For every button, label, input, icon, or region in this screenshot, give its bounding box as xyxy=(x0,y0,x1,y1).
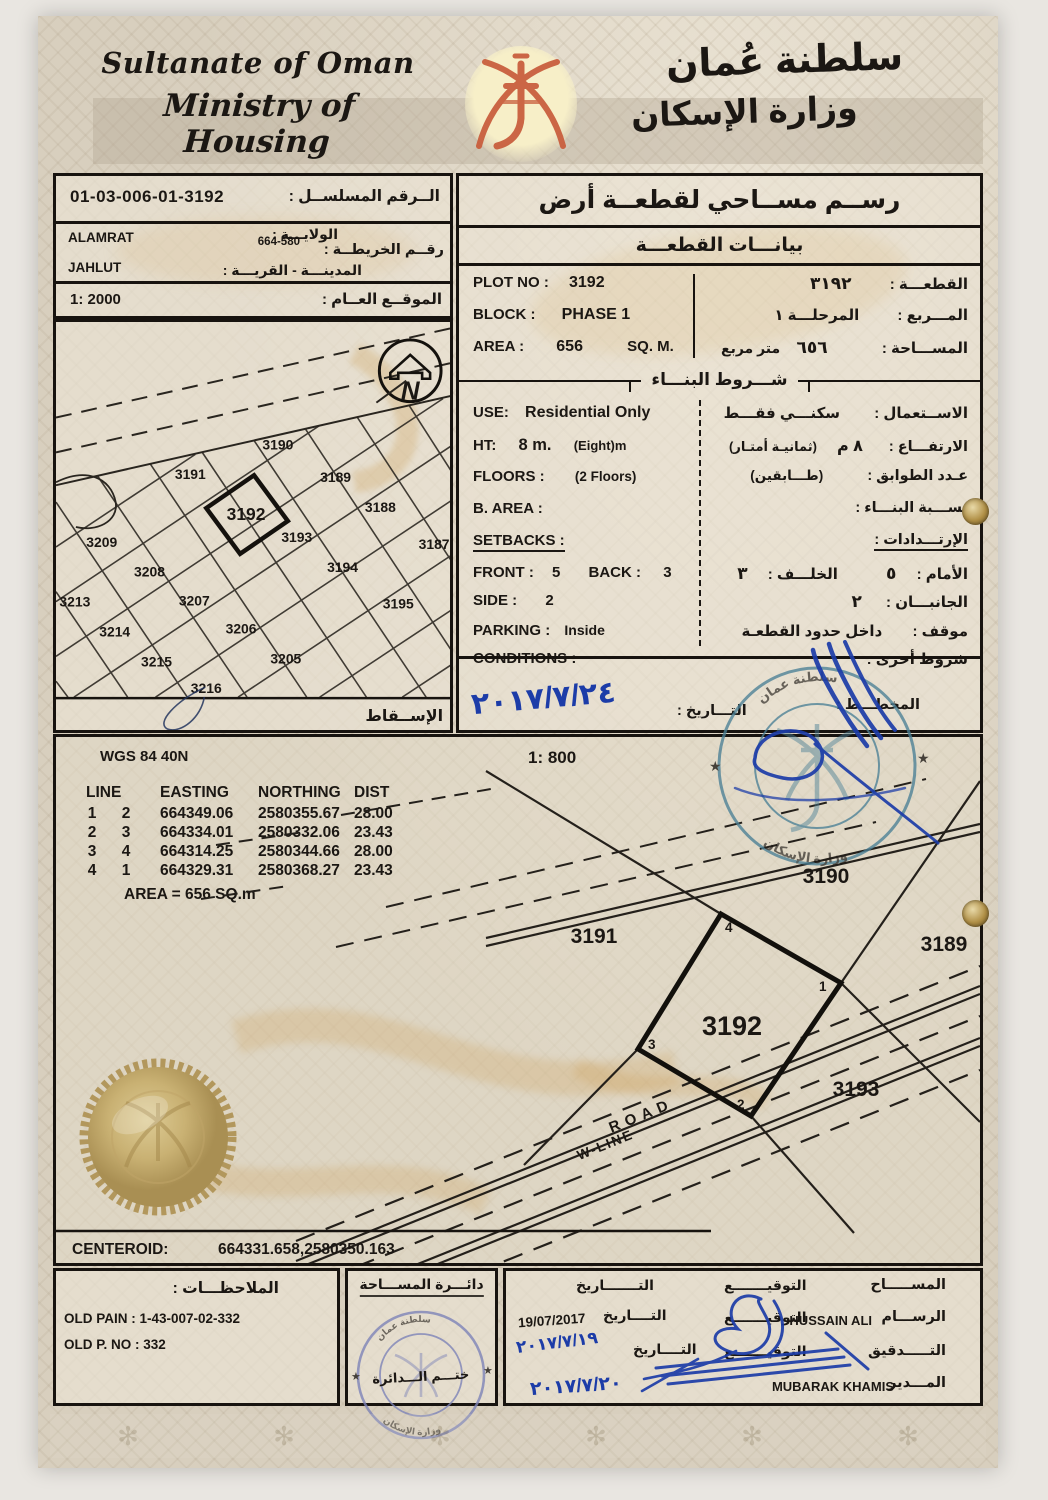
floors-ar-label: عـدد الطوابق : xyxy=(867,468,968,484)
side-ar-value: ٢ xyxy=(851,592,861,611)
stamp-star-left-icon: ★ xyxy=(351,1371,361,1383)
watermark-emblem-icon: ✻ xyxy=(273,1421,295,1452)
svg-text:3207: 3207 xyxy=(179,593,210,609)
conditions-header: شـــروط البنـــاء xyxy=(459,366,980,394)
ministry-title-english: Sultanate of Oman Ministry of Housing xyxy=(93,46,423,160)
handwritten-date: ٢٠١٧/٧/٢٤ xyxy=(470,675,617,722)
centeroid-value: 664331.658,2580350.163 xyxy=(218,1241,395,1258)
svg-text:23.43: 23.43 xyxy=(354,824,393,841)
plot-no-label: PLOT NO : xyxy=(473,274,549,291)
city-label: المدينـــة - القريـــة : xyxy=(223,262,362,279)
svg-text:3193: 3193 xyxy=(281,529,312,545)
svg-text:3191: 3191 xyxy=(175,466,206,482)
back-value: 3 xyxy=(663,564,671,581)
ministry-title-arabic-2: وزارة الإسكان xyxy=(631,88,859,135)
area-label: AREA : xyxy=(473,338,524,355)
parking-value: Inside xyxy=(564,622,604,638)
use-value: Residential Only xyxy=(525,404,650,421)
map-number-label: رقــم الخريطــة : xyxy=(324,242,444,258)
hole-punch-bottom xyxy=(962,900,989,927)
wilaya-value: ALAMRAT xyxy=(68,230,134,245)
svg-text:664329.31: 664329.31 xyxy=(160,862,234,879)
centeroid-label: CENTEROID: xyxy=(72,1241,168,1258)
side-value: 2 xyxy=(545,592,553,609)
projection-label: الإســقاط xyxy=(365,708,443,725)
svg-text:2: 2 xyxy=(88,824,97,841)
setbacks-ar-label: الإرتـــدادات : xyxy=(874,532,968,551)
svg-text:3: 3 xyxy=(648,1037,656,1052)
svg-text:سلطنة عمان: سلطنة عمان xyxy=(754,669,838,706)
svg-text:3190: 3190 xyxy=(262,436,293,452)
svg-text:664314.25: 664314.25 xyxy=(160,843,234,860)
svg-text:3195: 3195 xyxy=(383,596,414,612)
svg-text:3188: 3188 xyxy=(365,499,396,515)
svg-text:3191: 3191 xyxy=(571,925,618,948)
use-ar-value: سكنـــي فقـــط xyxy=(724,405,840,422)
svg-text:3189: 3189 xyxy=(320,469,351,485)
datum-label: WGS 84 40N xyxy=(100,748,188,765)
svg-text:3194: 3194 xyxy=(327,559,358,575)
svg-text:3189: 3189 xyxy=(921,933,968,956)
signatures-box: المســـــاح الرســـام التـــــدقيق المــ… xyxy=(503,1268,983,1406)
svg-text:4: 4 xyxy=(88,862,97,879)
block-value: PHASE 1 xyxy=(562,306,630,323)
svg-text:28.00: 28.00 xyxy=(354,843,393,860)
floors-value: (2 Floors) xyxy=(575,469,637,484)
svg-text:2: 2 xyxy=(737,1097,745,1112)
notes-box: الملاحظـــات : OLD PAIN : 1-43-007-02-33… xyxy=(53,1268,340,1406)
svg-text:3205: 3205 xyxy=(270,650,301,666)
svg-text:664334.01: 664334.01 xyxy=(160,824,234,841)
old-pain-line: OLD PAIN : 1-43-007-02-332 xyxy=(64,1311,240,1326)
map-number-value: 664-580 xyxy=(258,236,300,248)
floors-label: FLOORS : xyxy=(473,468,545,485)
front-label: FRONT : xyxy=(473,564,534,581)
ht-value: 8 m. xyxy=(519,436,552,454)
svg-text:3213: 3213 xyxy=(59,594,90,610)
city-value: JAHLUT xyxy=(68,260,121,275)
ht-ar-value: ٨ م xyxy=(837,438,863,455)
svg-text:2580344.66: 2580344.66 xyxy=(258,843,340,860)
plot-no-value: 3192 xyxy=(569,274,605,291)
svg-text:664349.06: 664349.06 xyxy=(160,805,234,822)
stamp-star-right-icon: ★ xyxy=(917,750,930,766)
hole-punch-top xyxy=(962,498,989,525)
svg-text:3215: 3215 xyxy=(141,653,172,669)
watermark-emblem-icon: ✻ xyxy=(117,1421,139,1452)
back-label: BACK : xyxy=(589,564,642,581)
ht-ar-note: (ثمانيـة أمتـار) xyxy=(729,439,817,454)
notes-title: الملاحظـــات : xyxy=(173,1279,279,1298)
watermark-emblem-icon: ✻ xyxy=(429,1421,451,1452)
floors-ar-value: (طـــابقين) xyxy=(750,468,823,483)
ministry-round-stamp-overlay: سلطنة عمان وزارة الإسكان ★ ★ xyxy=(695,638,945,893)
svg-text:2: 2 xyxy=(122,805,131,822)
paper-watermark-band: ✻ ✻ ✻ ✻ ✻ ✻ xyxy=(50,1414,986,1458)
drawing-scale-label: 1: 800 xyxy=(528,748,576,767)
front-ar-label: الأمام : xyxy=(917,566,968,583)
svg-text:2580368.27: 2580368.27 xyxy=(258,862,340,879)
svg-text:4: 4 xyxy=(725,920,733,935)
serial-info-box: 01-03-006-01-3192 الــرقم المسلســل : AL… xyxy=(53,173,453,319)
svg-text:3214: 3214 xyxy=(99,623,130,639)
svg-text:1: 1 xyxy=(819,979,827,994)
area-ar-label: المســـاحة : xyxy=(882,340,968,357)
svg-text:3: 3 xyxy=(88,843,97,860)
svg-text:3: 3 xyxy=(122,824,131,841)
ministry-line: Ministry of Housing xyxy=(90,88,425,160)
svg-text:23.43: 23.43 xyxy=(354,862,393,879)
side-ar-label: الجانبـــان : xyxy=(886,594,968,611)
watermark-emblem-icon: ✻ xyxy=(585,1421,607,1452)
front-ar-value: ٥ xyxy=(886,564,896,583)
coordinates-table: LINE EASTING NORTHING DIST 12 664349.062… xyxy=(86,784,393,903)
conditions-section: USE: Residential Only HT: 8 m. (Eight)m … xyxy=(459,394,980,656)
plot-no-ar-label: القطعـــة : xyxy=(890,276,968,293)
serial-number-value: 01-03-006-01-3192 xyxy=(70,187,224,207)
block-ar-value: المرحلـــة ١ xyxy=(774,307,859,324)
back-ar-value: ٣ xyxy=(737,564,747,583)
back-ar-label: الخلـــف : xyxy=(768,566,838,583)
signature-ink-strokes xyxy=(506,1271,986,1421)
gold-embossed-seal xyxy=(84,1063,232,1211)
serial-row: 01-03-006-01-3192 الــرقم المسلســل : xyxy=(56,176,450,224)
front-value: 5 xyxy=(552,564,560,581)
location-map-box: 3190 3191 3189 3192 3188 3209 3193 3187 … xyxy=(53,319,453,733)
map-number-row: ALAMRAT JAHLUT الولايـــة : رقــم الخريط… xyxy=(56,224,450,284)
svg-text:2580355.67: 2580355.67 xyxy=(258,805,340,822)
block-label: BLOCK : xyxy=(473,306,536,323)
conditions-divider-dashed xyxy=(699,400,701,646)
watermark-emblem-icon: ✻ xyxy=(897,1421,919,1452)
svg-text:1: 1 xyxy=(122,862,131,879)
use-label: USE: xyxy=(473,404,509,421)
plot-data-divider xyxy=(693,274,695,358)
area-ar-unit: متر مربع xyxy=(721,340,780,357)
svg-text:DIST: DIST xyxy=(354,784,390,801)
svg-text:3187: 3187 xyxy=(419,536,450,552)
national-emblem xyxy=(465,46,577,162)
barea-ar-label: نســـبة البنـــاء : xyxy=(855,500,968,516)
svg-text:2580332.06: 2580332.06 xyxy=(258,824,340,841)
watermark-emblem-icon: ✻ xyxy=(741,1421,763,1452)
area-value: 656 xyxy=(556,338,583,355)
svg-text:3208: 3208 xyxy=(134,564,165,580)
ht-note: (Eight)m xyxy=(574,438,627,453)
svg-text:3193: 3193 xyxy=(833,1078,880,1101)
svg-text:3206: 3206 xyxy=(226,620,257,636)
ht-ar-label: الارتفـــاع : xyxy=(889,439,968,455)
plot-no-ar-value: ٣١٩٢ xyxy=(810,274,852,293)
khanjar-emblem-icon xyxy=(465,46,577,162)
details-title: رســم مســاحي لقطعــة أرض xyxy=(459,176,980,228)
parking-label: PARKING : xyxy=(473,622,550,639)
svg-text:3192: 3192 xyxy=(227,504,266,524)
svg-text:3216: 3216 xyxy=(191,680,222,696)
svg-text:3209: 3209 xyxy=(86,534,117,550)
site-scale-row: 1: 2000 الموقــع العــام : xyxy=(56,284,450,316)
old-plot-no-line: OLD P. NO : 332 xyxy=(64,1337,166,1352)
serial-number-label: الــرقم المسلســل : xyxy=(289,187,440,206)
setbacks-label: SETBACKS : xyxy=(473,532,565,552)
sultanate-line: Sultanate of Oman xyxy=(93,46,423,80)
details-subtitle: بيانـــات القطعـــة xyxy=(459,228,980,266)
location-map-svg: 3190 3191 3189 3192 3188 3209 3193 3187 … xyxy=(56,322,452,732)
site-scale-label: الموقــع العــام : xyxy=(322,290,442,308)
area-unit: SQ. M. xyxy=(627,338,674,355)
scanned-land-survey-document: { "decor":{"star":"★","watermark_glyph":… xyxy=(0,0,1048,1500)
conditions-title: شـــروط البنـــاء xyxy=(641,370,797,390)
side-label: SIDE : xyxy=(473,592,517,609)
svg-text:NORTHING: NORTHING xyxy=(258,784,341,801)
stamp-star-right-icon: ★ xyxy=(483,1365,493,1377)
site-scale-value: 1: 2000 xyxy=(70,291,121,308)
survey-dept-box: دائـــرة المســـاحة سلطنة عمان وزارة الإ… xyxy=(345,1268,498,1406)
tan-watermark-swooshes xyxy=(176,1025,766,1202)
plot-3192-label: 3192 xyxy=(702,1011,762,1041)
ht-label: HT: xyxy=(473,437,496,454)
area-ar-value: ٦٥٦ xyxy=(797,338,828,357)
ministry-title-arabic-1: سلطنة عُمان xyxy=(665,34,904,87)
svg-text:LINE: LINE xyxy=(86,784,121,801)
use-ar-label: الاســتعمال : xyxy=(874,405,968,422)
plot-data-section: PLOT NO : 3192 BLOCK : PHASE 1 AREA : 65… xyxy=(459,266,980,366)
svg-text:وزارة الإسكان: وزارة الإسكان xyxy=(761,835,849,867)
barea-label: B. AREA : xyxy=(473,500,543,517)
svg-text:1: 1 xyxy=(88,805,97,822)
svg-text:EASTING: EASTING xyxy=(160,784,229,801)
stamp-star-left-icon: ★ xyxy=(709,758,722,774)
svg-text:4: 4 xyxy=(122,843,131,860)
dept-stamp-text: ختـــم الـــدائرة xyxy=(372,1366,470,1386)
block-ar-label: المـــربع : xyxy=(897,307,968,324)
